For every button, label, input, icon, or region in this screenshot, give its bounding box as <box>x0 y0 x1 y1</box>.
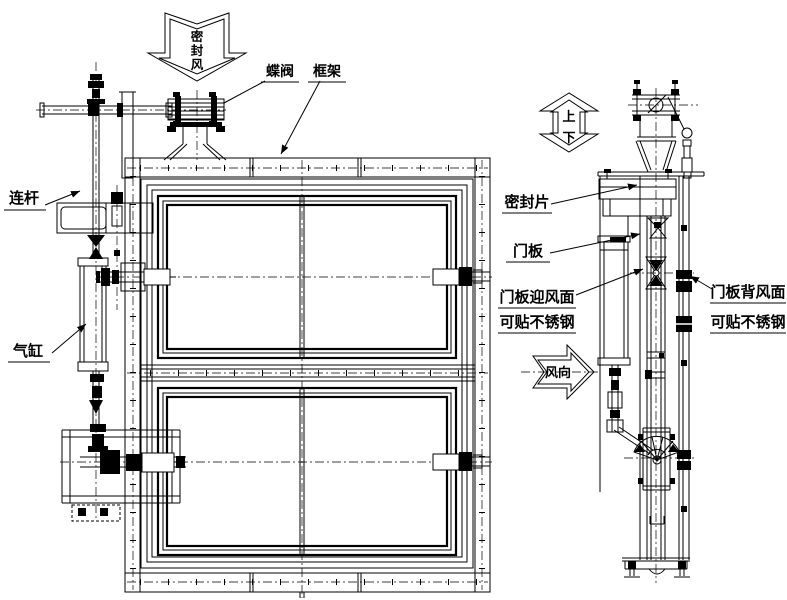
butterfly-valve-label: 蝶阀 <box>266 63 294 79</box>
down-label: 下 <box>562 130 575 145</box>
upper-right-pivot <box>433 267 490 286</box>
side-drive-link <box>682 128 692 178</box>
windward-label-line2: 可贴不锈钢 <box>499 313 574 331</box>
leeward-label-line1: 门板背风面 <box>710 283 785 301</box>
leeward-label-line2: 可贴不锈钢 <box>710 313 785 331</box>
lower-right-pivot <box>433 452 490 471</box>
cylinder-assembly <box>57 203 153 424</box>
connecting-rod-label: 连杆 <box>9 189 39 207</box>
frame-outline <box>125 158 490 598</box>
cad-drawing-canvas: 密 封 风 上 下 风向 <box>0 0 787 600</box>
frame-label: 框架 <box>313 63 341 79</box>
leader-lines <box>45 81 712 353</box>
seal-air-label-char1: 密 <box>190 29 204 44</box>
door-panel-label: 门板 <box>513 242 544 260</box>
up-label: 上 <box>562 109 575 124</box>
windward-label-line1: 门板迎风面 <box>499 288 574 306</box>
up-down-arrow: 上 下 <box>540 93 598 152</box>
side-view <box>598 80 704 583</box>
seal-strip-label: 密封片 <box>504 193 549 211</box>
side-rear-panel-edge <box>676 176 692 560</box>
seal-air-label-char3: 风 <box>191 58 204 72</box>
wind-direction-label: 风向 <box>545 365 571 380</box>
wind-direction-arrow: 风向 <box>521 345 601 399</box>
side-cylinder <box>598 236 653 454</box>
seal-air-flow-arrow: 密 封 风 <box>148 13 246 81</box>
damper-door-drawing: 密 封 风 上 下 风向 <box>0 0 787 600</box>
front-view <box>36 62 492 598</box>
seal-air-label-char2: 封 <box>191 43 204 58</box>
side-valve-flange <box>632 80 684 172</box>
cylinder-label: 气缸 <box>12 342 43 360</box>
